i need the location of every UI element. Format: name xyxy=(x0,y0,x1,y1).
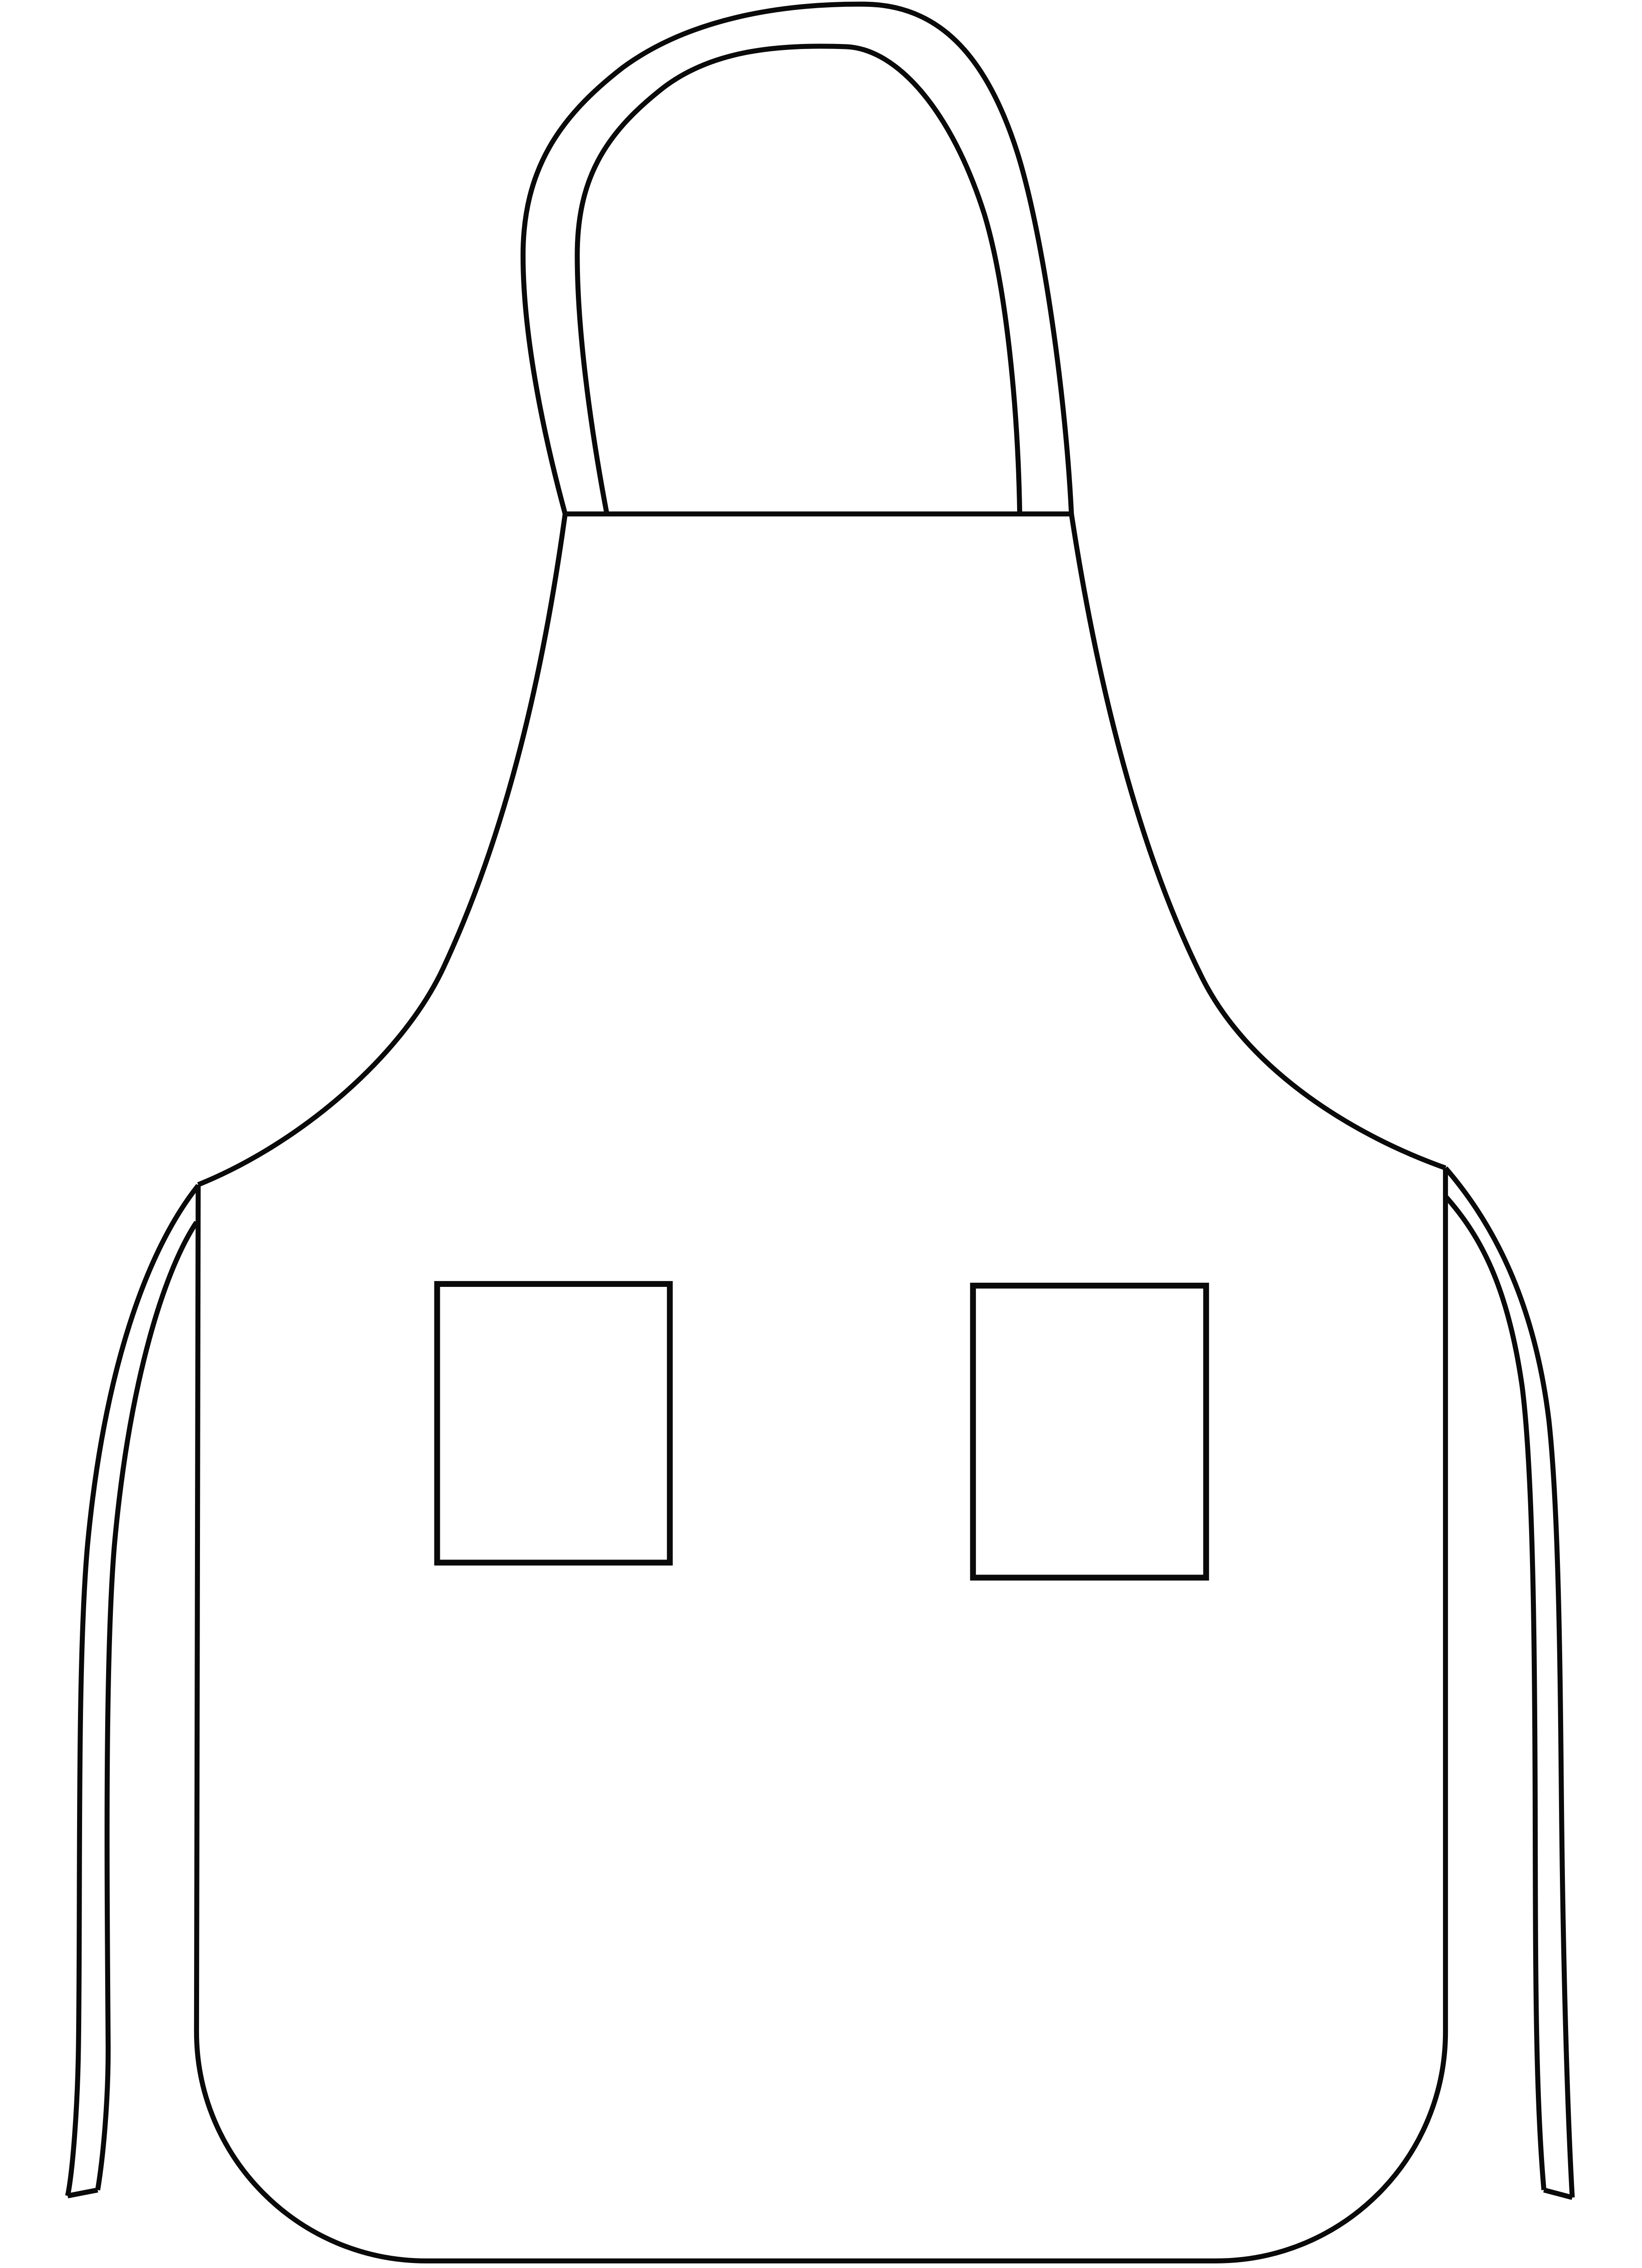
right-tie-inner-edge xyxy=(1446,1196,1544,2190)
left-pocket xyxy=(437,1284,670,1563)
right-tie-end-cap xyxy=(1544,2190,1573,2198)
left-tie-end-cap xyxy=(68,2190,97,2196)
neck-strap-inner-seam xyxy=(577,46,1020,514)
left-tie-inner-edge xyxy=(97,1222,196,2190)
neck-strap-outer-outline xyxy=(523,4,1071,514)
canvas-background xyxy=(0,0,1642,2268)
apron-line-art xyxy=(68,4,1572,2261)
left-tie-outer-edge xyxy=(68,1186,198,2196)
bib-left-edge xyxy=(198,514,565,1185)
right-pocket xyxy=(973,1286,1206,1578)
bib-right-edge xyxy=(1072,514,1446,1168)
body-outline xyxy=(196,1168,1445,2261)
apron-illustration xyxy=(0,0,1642,2268)
